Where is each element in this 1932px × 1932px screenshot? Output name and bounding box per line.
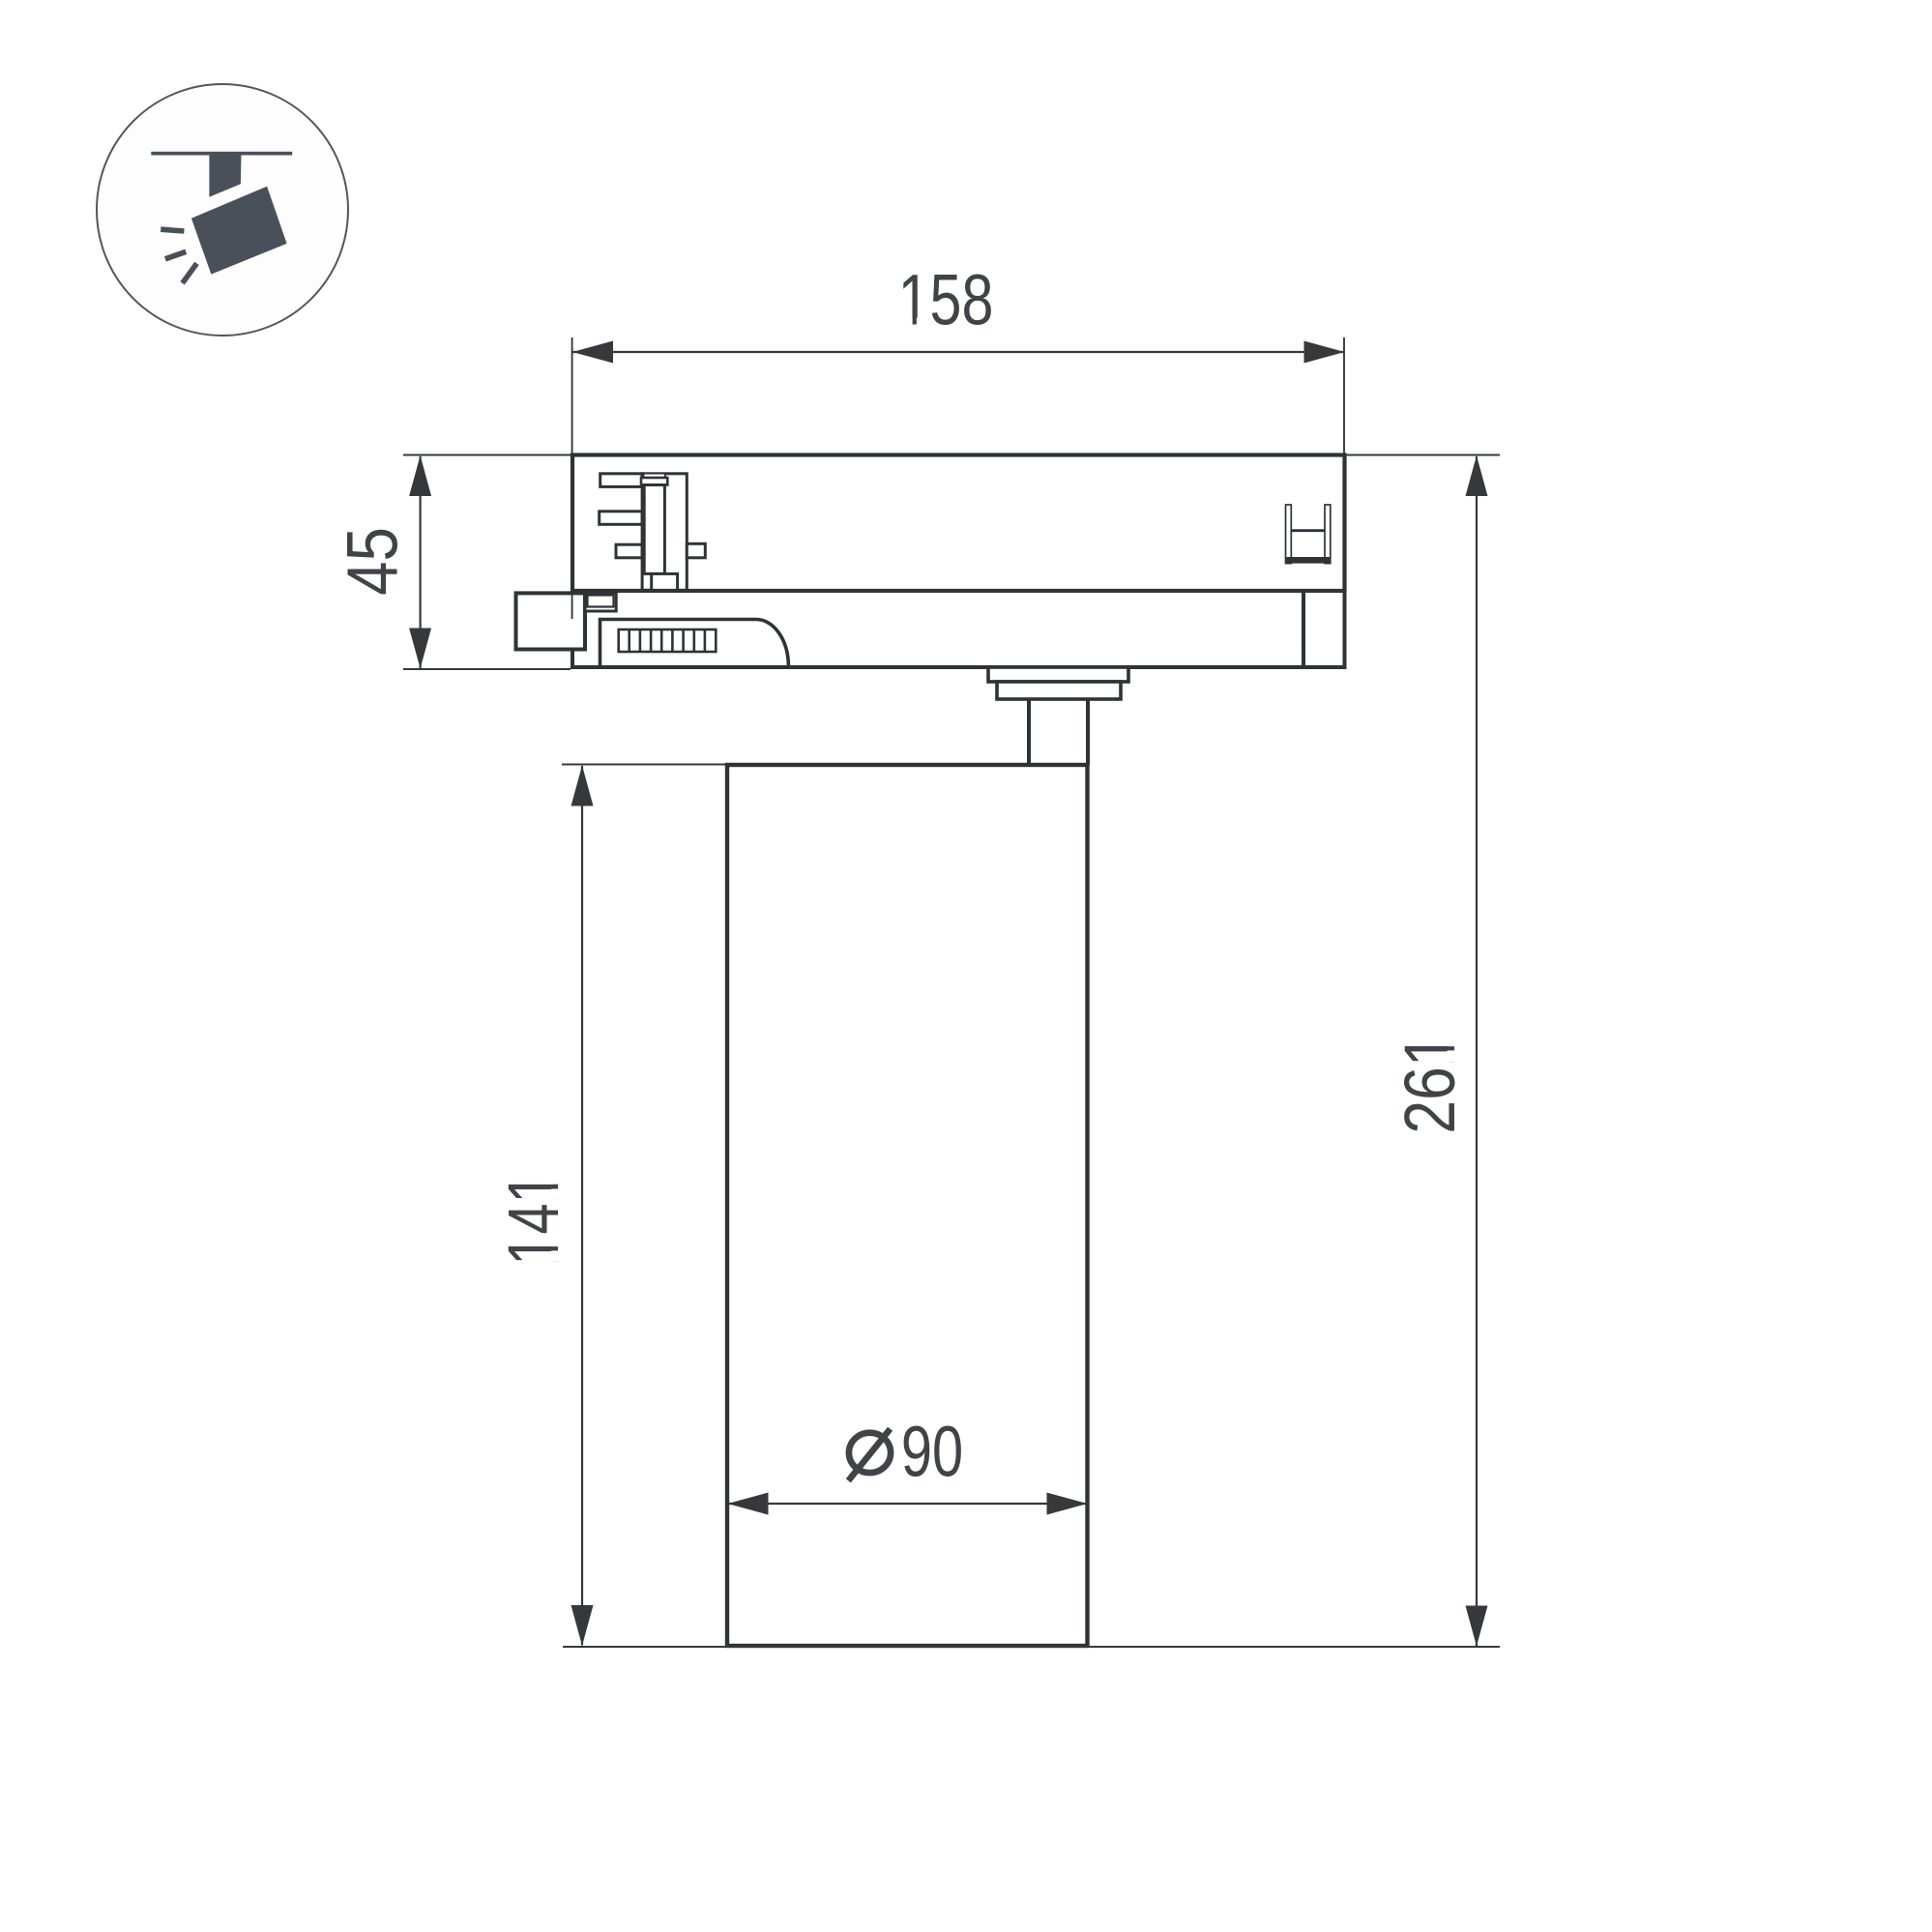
svg-text:90: 90 xyxy=(901,1413,963,1493)
svg-text:261: 261 xyxy=(1390,1033,1470,1133)
svg-text:158: 158 xyxy=(898,260,994,340)
svg-text:45: 45 xyxy=(333,527,413,596)
svg-text:141: 141 xyxy=(494,1172,574,1265)
